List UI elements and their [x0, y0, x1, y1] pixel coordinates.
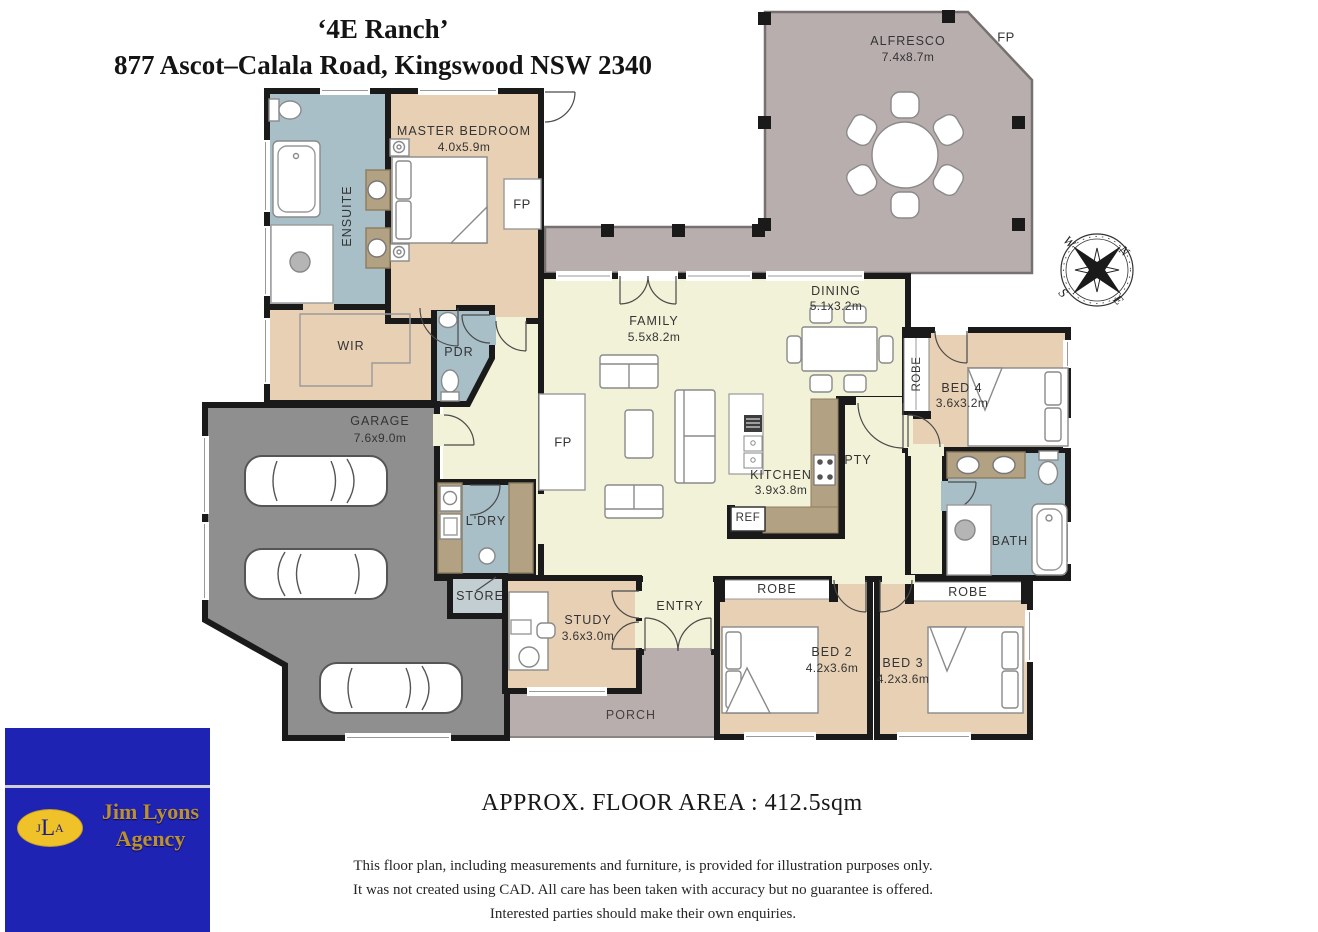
room-dims-garage: 7.6x9.0m	[354, 431, 407, 445]
monogram-a: A	[55, 821, 64, 836]
room-label-master: MASTER BEDROOM	[397, 124, 531, 138]
room-dims-dining: 5.1x3.2m	[810, 299, 863, 313]
sink-icon	[744, 436, 762, 451]
fp-label-family: FP	[554, 435, 572, 450]
room-dims-family: 5.5x8.2m	[628, 330, 681, 344]
room-label-garage: GARAGE	[350, 414, 410, 428]
room-label-store: STORE	[456, 589, 504, 603]
bed-wing-hall-floor	[911, 452, 943, 578]
robe-label-bed4: ROBE	[911, 357, 923, 392]
room-dims-alfresco: 7.4x8.7m	[882, 50, 935, 64]
property-name: ‘4E Ranch’	[317, 14, 448, 45]
agency-name-line1: Jim Lyons	[93, 798, 208, 825]
cooktop-icon	[814, 455, 835, 485]
room-label-ensuite: ENSUITE	[340, 185, 354, 246]
agency-logo: JLA Jim Lyons Agency	[5, 728, 210, 932]
room-label-bath: BATH	[992, 534, 1028, 548]
room-label-bed4: BED 4	[941, 381, 982, 395]
room-dims-bed4: 3.6x3.2m	[936, 396, 989, 410]
room-label-pty: PTY	[844, 453, 871, 467]
fp-label-alfresco: FP	[997, 30, 1015, 45]
room-label-entry: ENTRY	[656, 599, 703, 613]
room-dims-study: 3.6x3.0m	[562, 629, 615, 643]
agency-monogram-icon: JLA	[17, 809, 83, 847]
room-dims-kitchen: 3.9x3.8m	[755, 483, 808, 497]
robe-label-bed3: ROBE	[948, 585, 987, 599]
agency-name-line2: Agency	[93, 825, 208, 852]
room-label-bed2: BED 2	[811, 645, 852, 659]
room-label-alfresco: ALFRESCO	[870, 34, 945, 48]
room-label-pdr: PDR	[444, 345, 473, 359]
room-label-kitchen: KITCHEN	[750, 468, 812, 482]
chair-icon	[537, 623, 555, 638]
entry-floor	[639, 579, 717, 652]
room-label-bed3: BED 3	[882, 656, 923, 670]
robe-label-bed2: ROBE	[757, 582, 796, 596]
bathtub-icon	[273, 141, 320, 217]
room-label-study: STUDY	[564, 613, 611, 627]
room-label-porch: PORCH	[606, 708, 656, 722]
disclaimer-text: This floor plan, including measurements …	[293, 854, 993, 926]
agency-name: Jim Lyons Agency	[93, 798, 208, 852]
toilet-icon	[269, 99, 279, 121]
master-bed-icon	[390, 139, 487, 261]
disclaimer-line2: It was not created using CAD. All care h…	[293, 878, 993, 902]
disclaimer-line3: Interested parties should make their own…	[293, 902, 993, 926]
bed2-icon	[722, 627, 818, 713]
room-dims-bed3: 4.2x3.6m	[877, 672, 930, 686]
room-label-ref: REF	[736, 512, 761, 524]
room-dims-master: 4.0x5.9m	[438, 140, 491, 154]
coffee-table-icon	[625, 410, 653, 458]
room-label-family: FAMILY	[629, 314, 679, 328]
room-dims-bed2: 4.2x3.6m	[806, 661, 859, 675]
disclaimer-line1: This floor plan, including measurements …	[293, 854, 993, 878]
floor-area-text: APPROX. FLOOR AREA : 412.5sqm	[481, 790, 862, 817]
floor-plan-page: ‘4E Ranch’ 877 Ascot–Calala Road, Kingsw…	[0, 0, 1318, 932]
fp-label-master: FP	[513, 197, 531, 212]
room-label-wir: WIR	[337, 339, 364, 353]
monogram-l: L	[41, 815, 55, 841]
logo-divider	[5, 785, 210, 788]
room-label-ldry: L'DRY	[466, 514, 507, 528]
study-furniture	[509, 592, 555, 670]
bed3-icon	[928, 627, 1023, 713]
room-label-dining: DINING	[811, 284, 861, 298]
property-address: 877 Ascot–Calala Road, Kingswood NSW 234…	[114, 50, 652, 81]
